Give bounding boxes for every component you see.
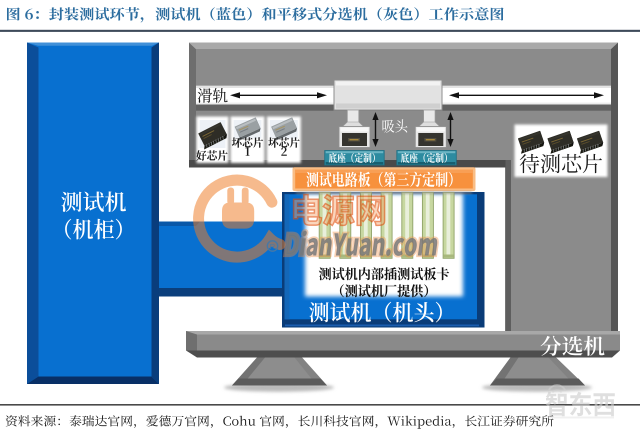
svg-text:R: R [270,242,276,251]
